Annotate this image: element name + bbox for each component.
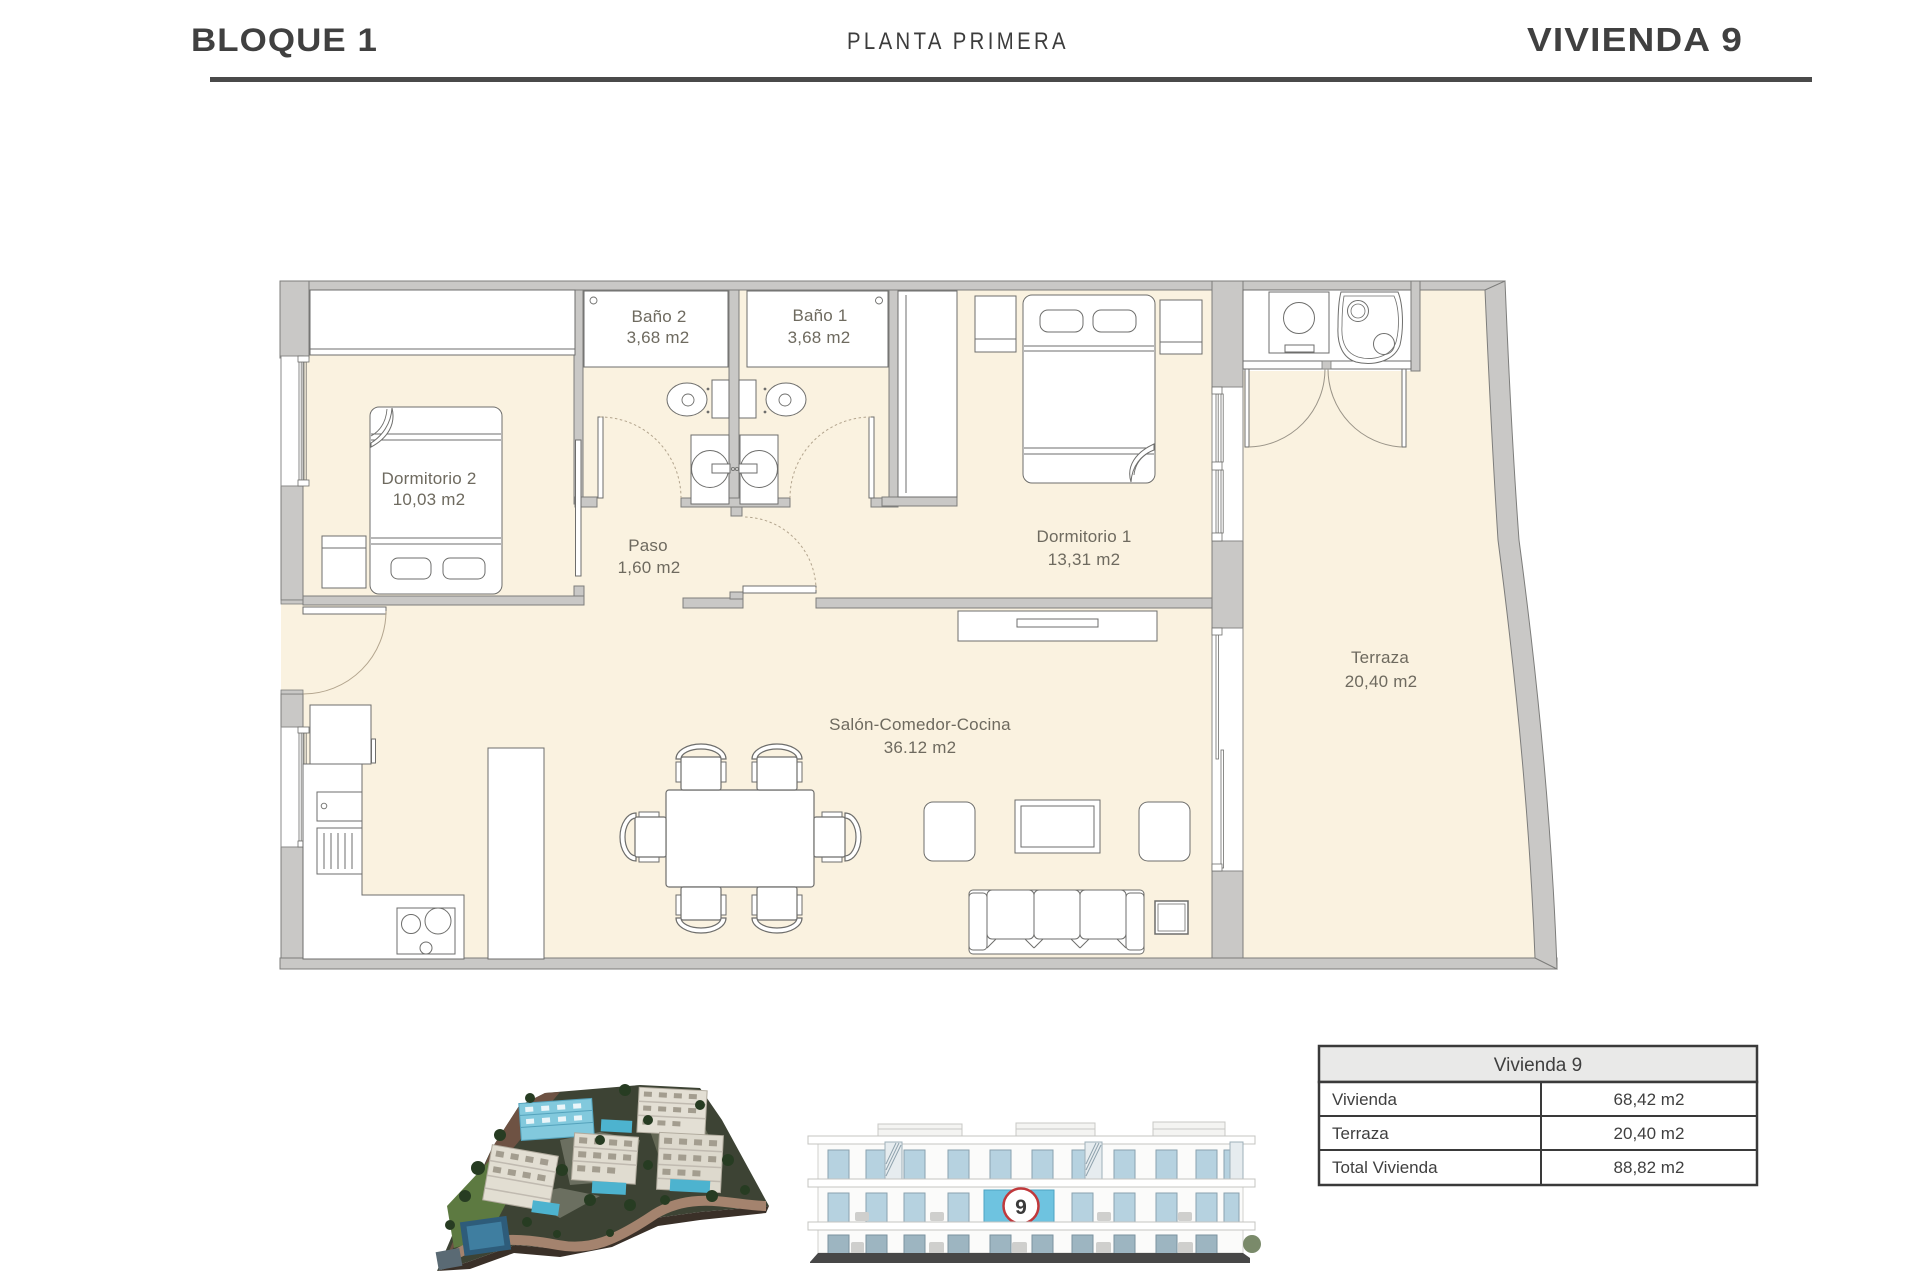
svg-text:Dormitorio 2: Dormitorio 2 [382, 469, 477, 488]
svg-text:Baño 1: Baño 1 [792, 306, 847, 325]
svg-text:3,68 m2: 3,68 m2 [788, 328, 851, 347]
svg-text:Vivienda: Vivienda [1332, 1090, 1397, 1109]
svg-text:BLOQUE 1: BLOQUE 1 [191, 22, 378, 58]
svg-text:Baño 2: Baño 2 [631, 307, 686, 326]
svg-text:Paso: Paso [628, 536, 668, 555]
svg-text:1,60 m2: 1,60 m2 [618, 558, 681, 577]
svg-text:13,31 m2: 13,31 m2 [1048, 550, 1120, 569]
svg-text:Terraza: Terraza [1351, 648, 1409, 667]
svg-text:68,42 m2: 68,42 m2 [1614, 1090, 1685, 1109]
svg-text:Dormitorio 1: Dormitorio 1 [1037, 527, 1132, 546]
svg-text:Salón-Comedor-Cocina: Salón-Comedor-Cocina [829, 715, 1011, 734]
svg-text:VIVIENDA 9: VIVIENDA 9 [1527, 21, 1743, 58]
svg-text:Terraza: Terraza [1332, 1124, 1389, 1143]
svg-text:Total Vivienda: Total Vivienda [1332, 1158, 1438, 1177]
svg-text:Vivienda 9: Vivienda 9 [1494, 1055, 1582, 1076]
svg-text:20,40 m2: 20,40 m2 [1614, 1124, 1685, 1143]
svg-text:9: 9 [1015, 1196, 1027, 1219]
svg-text:3,68 m2: 3,68 m2 [627, 328, 690, 347]
svg-text:36.12 m2: 36.12 m2 [884, 738, 956, 757]
svg-text:88,82 m2: 88,82 m2 [1614, 1158, 1685, 1177]
svg-text:10,03 m2: 10,03 m2 [393, 490, 465, 509]
svg-text:20,40 m2: 20,40 m2 [1345, 672, 1417, 691]
svg-text:PLANTA PRIMERA: PLANTA PRIMERA [847, 28, 1069, 55]
